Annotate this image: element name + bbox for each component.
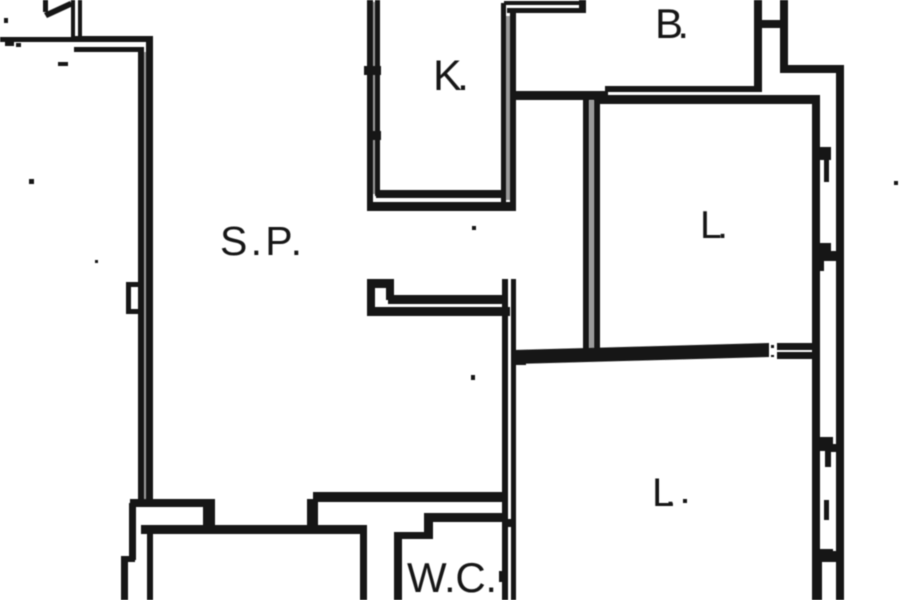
svg-text:B.: B. xyxy=(655,0,689,47)
svg-text:L.: L. xyxy=(652,471,676,515)
svg-text:W.C.: W.C. xyxy=(407,554,497,600)
svg-text:K.: K. xyxy=(433,52,469,100)
svg-text:S.P.: S.P. xyxy=(220,218,302,264)
svg-text:L.: L. xyxy=(700,204,728,247)
